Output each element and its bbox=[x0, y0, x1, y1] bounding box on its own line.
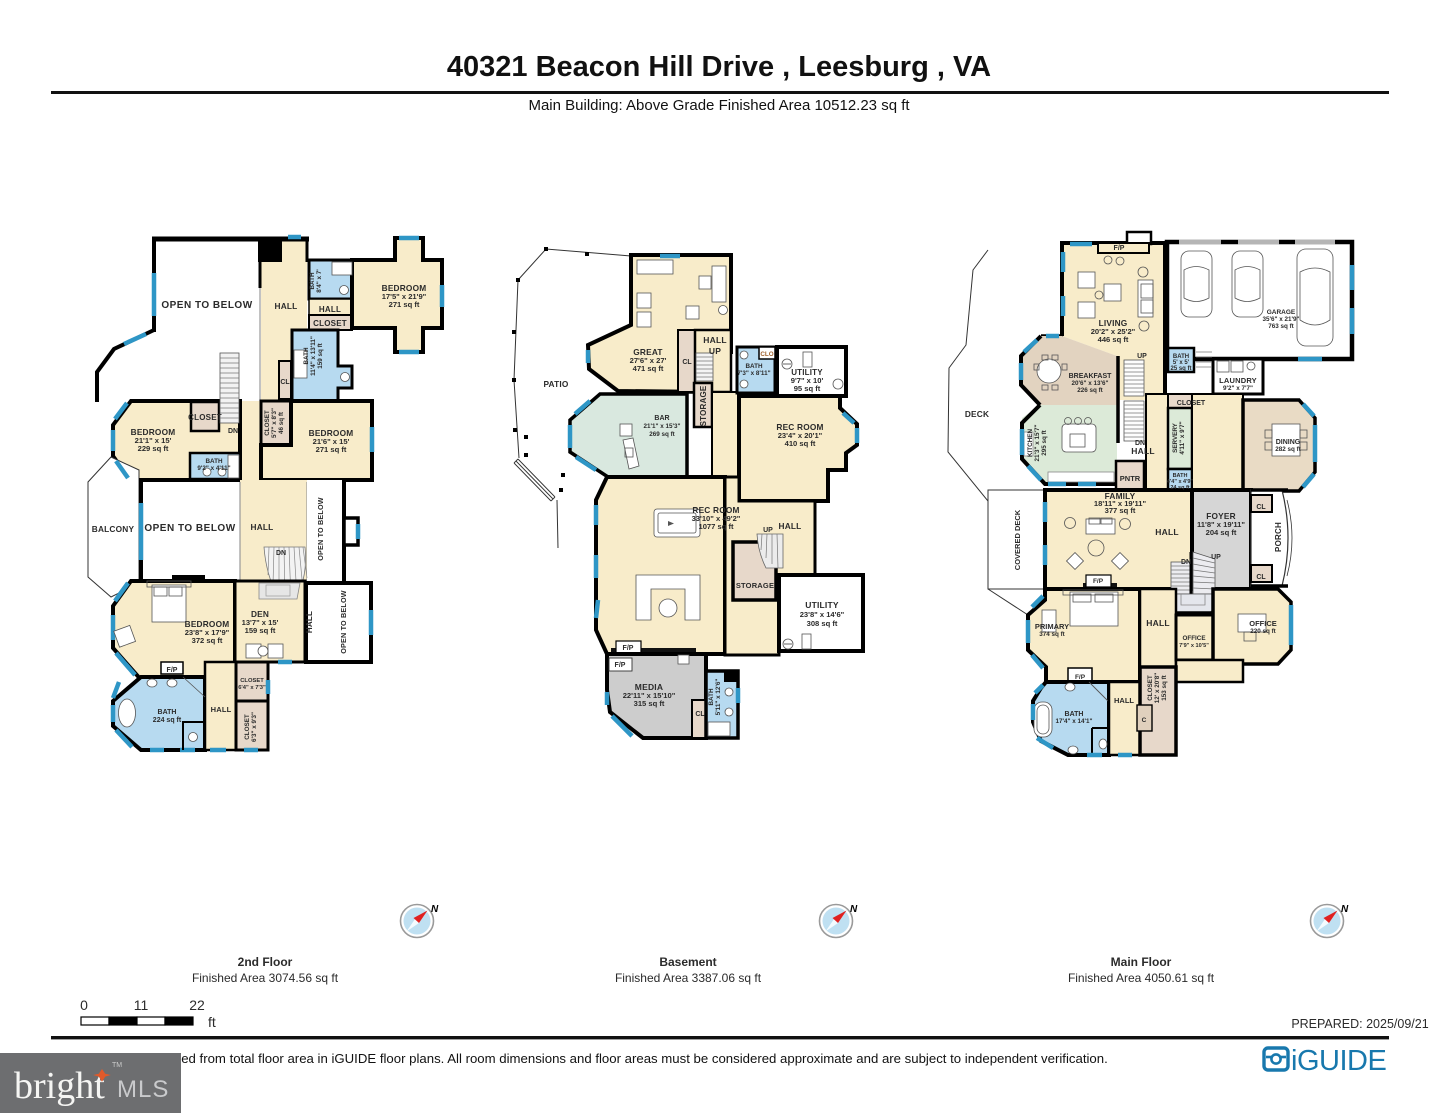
svg-text:410 sq ft: 410 sq ft bbox=[785, 439, 816, 448]
svg-text:iGUIDE: iGUIDE bbox=[1291, 1045, 1386, 1077]
svg-text:PATIO: PATIO bbox=[543, 379, 568, 389]
svg-text:BATH: BATH bbox=[205, 458, 222, 465]
svg-text:2nd Floor: 2nd Floor bbox=[238, 955, 293, 969]
svg-text:204 sq ft: 204 sq ft bbox=[1206, 528, 1237, 537]
svg-text:BREAKFAST: BREAKFAST bbox=[1069, 373, 1113, 380]
svg-text:STORAGE: STORAGE bbox=[699, 385, 708, 426]
svg-text:46 sq ft: 46 sq ft bbox=[278, 411, 285, 434]
svg-text:BATH: BATH bbox=[745, 363, 762, 370]
svg-text:21'3" x 15'7": 21'3" x 15'7" bbox=[1034, 424, 1041, 461]
svg-text:OFFICE: OFFICE bbox=[1249, 619, 1277, 628]
svg-text:HALL: HALL bbox=[1114, 696, 1134, 705]
svg-text:40321 Beacon Hill Drive , Lees: 40321 Beacon Hill Drive , Leesburg , VA bbox=[447, 51, 991, 83]
svg-text:269 sq ft: 269 sq ft bbox=[649, 431, 675, 438]
svg-text:BATH: BATH bbox=[303, 347, 310, 364]
svg-text:Main Floor: Main Floor bbox=[1111, 955, 1172, 969]
svg-text:OPEN TO BELOW: OPEN TO BELOW bbox=[339, 590, 348, 654]
svg-text:0: 0 bbox=[80, 997, 88, 1013]
svg-text:763 sq ft: 763 sq ft bbox=[1268, 323, 1294, 330]
svg-text:MLS: MLS bbox=[117, 1076, 169, 1103]
svg-text:BATH: BATH bbox=[158, 709, 177, 716]
svg-text:35'6" x 21'9": 35'6" x 21'9" bbox=[1263, 316, 1300, 323]
svg-text:OPEN TO BELOW: OPEN TO BELOW bbox=[144, 523, 235, 534]
svg-text:BALCONY: BALCONY bbox=[92, 524, 135, 534]
svg-text:PORCH: PORCH bbox=[1274, 522, 1283, 552]
svg-text:7'3" x 8'11": 7'3" x 8'11" bbox=[737, 370, 770, 377]
svg-text:bright: bright bbox=[14, 1065, 105, 1107]
svg-text:315 sq ft: 315 sq ft bbox=[634, 699, 665, 708]
svg-text:8'4" x 7': 8'4" x 7' bbox=[316, 269, 323, 293]
svg-text:95 sq ft: 95 sq ft bbox=[794, 384, 821, 393]
svg-text:CLOSET: CLOSET bbox=[313, 319, 347, 328]
svg-text:CLOSET: CLOSET bbox=[240, 678, 264, 684]
svg-text:Basement: Basement bbox=[659, 955, 716, 969]
svg-text:5'11" x 12'6": 5'11" x 12'6" bbox=[715, 679, 722, 716]
svg-text:OPEN TO BELOW: OPEN TO BELOW bbox=[316, 497, 325, 561]
svg-text:CLO: CLO bbox=[760, 351, 773, 358]
svg-text:Main Building: Above Grade Fin: Main Building: Above Grade Finished Area… bbox=[528, 97, 910, 114]
svg-text:HALL: HALL bbox=[1131, 446, 1154, 456]
svg-text:372 sq ft: 372 sq ft bbox=[192, 636, 223, 645]
svg-text:F/P: F/P bbox=[623, 645, 634, 652]
svg-text:F/P: F/P bbox=[1114, 245, 1125, 252]
svg-text:F/P: F/P bbox=[615, 662, 626, 669]
svg-text:21'1" x 15'3": 21'1" x 15'3" bbox=[644, 423, 681, 430]
svg-text:CL: CL bbox=[695, 711, 705, 718]
svg-text:BATH: BATH bbox=[708, 688, 715, 705]
svg-text:HALL: HALL bbox=[251, 522, 274, 532]
svg-text:CL: CL bbox=[1256, 574, 1266, 581]
svg-text:BATH: BATH bbox=[309, 272, 316, 289]
svg-text:DN: DN bbox=[1181, 559, 1191, 566]
svg-text:UP: UP bbox=[1211, 554, 1221, 561]
svg-text:DECK: DECK bbox=[965, 409, 989, 419]
svg-text:7'9" x 10'5": 7'9" x 10'5" bbox=[1179, 643, 1209, 649]
svg-text:12' x 20'8": 12' x 20'8" bbox=[1154, 673, 1161, 704]
svg-text:F/P: F/P bbox=[167, 667, 178, 674]
svg-text:11'4" x 13'11": 11'4" x 13'11" bbox=[310, 336, 317, 376]
svg-text:308 sq ft: 308 sq ft bbox=[807, 619, 838, 628]
svg-text:UP: UP bbox=[709, 346, 721, 356]
svg-text:226 sq ft: 226 sq ft bbox=[1077, 387, 1103, 394]
svg-text:HALL: HALL bbox=[305, 611, 314, 633]
svg-text:229 sq ft: 229 sq ft bbox=[138, 444, 169, 453]
svg-text:6'3" x 9'3": 6'3" x 9'3" bbox=[251, 712, 258, 742]
svg-text:BATH: BATH bbox=[1065, 711, 1084, 718]
svg-text:11: 11 bbox=[134, 997, 149, 1013]
svg-text:OFFICE: OFFICE bbox=[1182, 635, 1205, 642]
svg-text:CLOSET: CLOSET bbox=[1147, 675, 1154, 701]
svg-text:DINING: DINING bbox=[1276, 439, 1301, 446]
svg-text:F/P: F/P bbox=[1075, 674, 1086, 681]
svg-text:ft: ft bbox=[208, 1014, 216, 1030]
svg-text:STORAGE: STORAGE bbox=[736, 581, 774, 590]
svg-text:159 sq ft: 159 sq ft bbox=[317, 342, 324, 368]
svg-text:159 sq ft: 159 sq ft bbox=[245, 626, 276, 635]
svg-text:20'6" x 13'6": 20'6" x 13'6" bbox=[1072, 380, 1109, 387]
svg-text:25 sq ft: 25 sq ft bbox=[1170, 366, 1191, 372]
svg-text:22: 22 bbox=[189, 997, 205, 1013]
svg-text:271 sq ft: 271 sq ft bbox=[389, 300, 420, 309]
svg-text:220 sq ft: 220 sq ft bbox=[1250, 628, 1276, 635]
svg-text:24 sq ft: 24 sq ft bbox=[1170, 485, 1189, 491]
svg-text:F/P: F/P bbox=[1093, 578, 1104, 585]
svg-text:LAUNDRY: LAUNDRY bbox=[1219, 376, 1257, 385]
svg-text:CLOSET: CLOSET bbox=[188, 413, 222, 422]
svg-text:UTILITY: UTILITY bbox=[805, 600, 839, 610]
svg-text:White walls are excluded from: White walls are excluded from total floo… bbox=[50, 1051, 1108, 1066]
svg-text:446 sq ft: 446 sq ft bbox=[1098, 335, 1129, 344]
svg-text:KITCHEN: KITCHEN bbox=[1027, 429, 1034, 457]
svg-text:282 sq ft: 282 sq ft bbox=[1275, 446, 1301, 453]
svg-text:CL: CL bbox=[682, 359, 692, 366]
svg-text:GARAGE: GARAGE bbox=[1267, 309, 1296, 316]
svg-text:CLOSET: CLOSET bbox=[264, 410, 271, 436]
svg-text:471 sq ft: 471 sq ft bbox=[633, 364, 664, 373]
svg-text:HALL: HALL bbox=[211, 705, 232, 714]
svg-text:HALL: HALL bbox=[275, 301, 298, 311]
svg-text:UP: UP bbox=[763, 527, 773, 534]
svg-text:HALL: HALL bbox=[319, 305, 341, 314]
svg-text:SERVERY: SERVERY bbox=[1172, 422, 1179, 453]
svg-text:CLOSET: CLOSET bbox=[244, 714, 251, 740]
svg-text:TM: TM bbox=[112, 1062, 122, 1069]
svg-text:HALL: HALL bbox=[779, 521, 802, 531]
svg-text:HALL: HALL bbox=[703, 335, 726, 345]
svg-text:271 sq ft: 271 sq ft bbox=[316, 445, 347, 454]
svg-text:153 sq ft: 153 sq ft bbox=[1161, 674, 1168, 700]
svg-text:374 sq ft: 374 sq ft bbox=[1039, 631, 1065, 638]
svg-text:224 sq ft: 224 sq ft bbox=[153, 717, 182, 724]
svg-text:Finished Area 4050.61 sq ft: Finished Area 4050.61 sq ft bbox=[1068, 971, 1215, 985]
svg-text:Finished Area 3387.06 sq ft: Finished Area 3387.06 sq ft bbox=[615, 971, 762, 985]
svg-text:5'7" x 8'3": 5'7" x 8'3" bbox=[271, 408, 278, 438]
svg-text:CL: CL bbox=[1256, 504, 1266, 511]
svg-text:PREPARED: 2025/09/21: PREPARED: 2025/09/21 bbox=[1291, 1017, 1428, 1031]
svg-text:377 sq ft: 377 sq ft bbox=[1105, 506, 1136, 515]
svg-text:OPEN TO BELOW: OPEN TO BELOW bbox=[161, 300, 252, 311]
svg-text:23'8" x 14'6": 23'8" x 14'6" bbox=[800, 610, 845, 619]
svg-text:C: C bbox=[1142, 717, 1147, 724]
svg-text:UP: UP bbox=[1137, 353, 1147, 360]
svg-text:295 sq ft: 295 sq ft bbox=[1041, 429, 1048, 455]
svg-text:9'2" x 4'11": 9'2" x 4'11" bbox=[197, 465, 230, 472]
svg-text:BAR: BAR bbox=[654, 415, 669, 422]
svg-text:1077 sq ft: 1077 sq ft bbox=[698, 522, 734, 531]
svg-text:4'11" x 9'7": 4'11" x 9'7" bbox=[1179, 421, 1186, 454]
svg-text:17'4" x 14'1": 17'4" x 14'1" bbox=[1056, 718, 1093, 725]
svg-text:DN: DN bbox=[276, 550, 286, 557]
svg-text:CLOSET: CLOSET bbox=[1177, 400, 1206, 407]
svg-text:HALL: HALL bbox=[1146, 618, 1169, 628]
svg-text:HALL: HALL bbox=[1155, 527, 1178, 537]
svg-text:COVERED DECK: COVERED DECK bbox=[1013, 509, 1022, 570]
svg-text:PNTR: PNTR bbox=[1120, 474, 1141, 483]
svg-text:DN: DN bbox=[228, 428, 238, 435]
svg-text:Finished Area 3074.56 sq ft: Finished Area 3074.56 sq ft bbox=[192, 971, 339, 985]
svg-text:CL: CL bbox=[280, 379, 290, 386]
svg-text:6'4" x 7'3": 6'4" x 7'3" bbox=[238, 685, 266, 691]
svg-text:PRIMARY: PRIMARY bbox=[1035, 622, 1069, 631]
svg-text:9'2" x 7'7": 9'2" x 7'7" bbox=[1223, 385, 1253, 392]
